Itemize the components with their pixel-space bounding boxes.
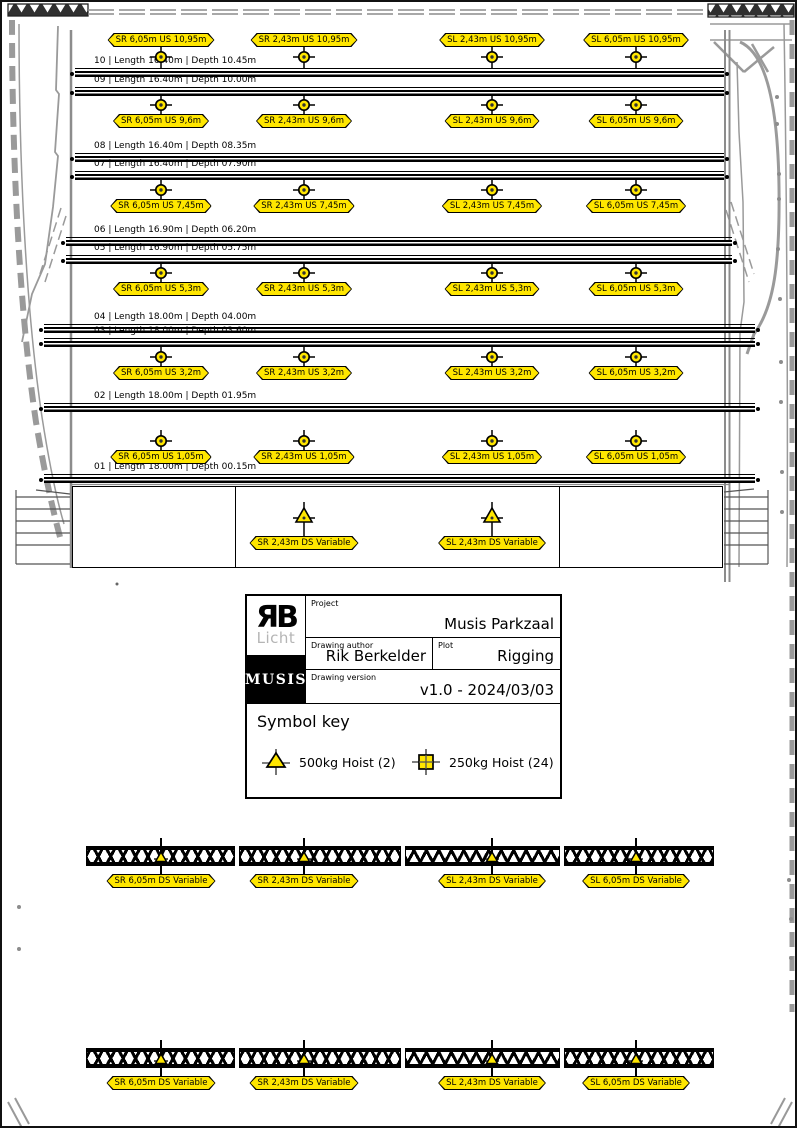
flybar-label: 08 | Length 16.40m | Depth 08.35m bbox=[94, 141, 256, 151]
hoist-250kg-icon bbox=[481, 430, 503, 452]
hoist-label: SL 2,43m US 3,2m bbox=[445, 366, 540, 380]
plot-value: Rigging bbox=[497, 647, 554, 665]
hoist-500kg bbox=[628, 849, 644, 868]
hoist-500kg bbox=[153, 849, 169, 868]
hoist-500kg-icon bbox=[479, 502, 505, 540]
hoist-label: SL 2,43m US 5,3m bbox=[445, 282, 540, 296]
hoist-label-text: SL 6,05m US 5,3m bbox=[590, 283, 683, 295]
key-item-250kg: 250kg Hoist (24) bbox=[411, 748, 554, 776]
truss-segment bbox=[240, 847, 400, 865]
hoist-label-text: SR 6,05m US 1,05m bbox=[111, 451, 210, 463]
author-value: Rik Berkelder bbox=[326, 647, 426, 665]
hoist-label: SL 2,43m US 1,05m bbox=[442, 450, 542, 464]
hoist-label: SR 2,43m US 5,3m bbox=[256, 282, 352, 296]
hoist-500kg-icon bbox=[291, 502, 317, 540]
hoist-label-text: SL 6,05m US 10,95m bbox=[584, 34, 688, 46]
hoist-label: SR 6,05m US 10,95m bbox=[108, 33, 215, 47]
truss-hoist-label-text: SR 2,43m DS Variable bbox=[251, 1077, 358, 1089]
top-truss-band-left bbox=[8, 4, 88, 16]
stage-apron-divider bbox=[559, 486, 560, 568]
truss-hoist-label: SL 6,05m DS Variable bbox=[582, 1076, 690, 1090]
hoist-label: SR 2,43m US 1,05m bbox=[253, 450, 354, 464]
key-label-250kg: 250kg Hoist (24) bbox=[449, 755, 554, 770]
hoist-label: SR 2,43m US 7,45m bbox=[253, 199, 354, 213]
ds-hoist-label: SL 2,43m DS Variable bbox=[438, 536, 546, 550]
hoist-250kg-icon bbox=[150, 262, 172, 284]
hoist-250kg bbox=[625, 46, 647, 72]
hoist-label: SR 6,05m US 7,45m bbox=[110, 199, 211, 213]
hoist-label-text: SL 6,05m US 1,05m bbox=[587, 451, 685, 463]
hoist-500kg-icon bbox=[296, 850, 312, 864]
hoist-label: SR 2,43m US 9,6m bbox=[256, 114, 352, 128]
hoist-label: SR 6,05m US 5,3m bbox=[113, 282, 209, 296]
hoist-label: SR 6,05m US 1,05m bbox=[110, 450, 211, 464]
flybar-line bbox=[44, 403, 755, 404]
hoist-500kg-icon bbox=[484, 1052, 500, 1066]
flybar-label: 05 | Length 16.90m | Depth 05.75m bbox=[94, 243, 256, 253]
truss-hoist-label-text: SL 6,05m DS Variable bbox=[583, 875, 689, 887]
truss-hoist-label-text: SL 2,43m DS Variable bbox=[439, 875, 545, 887]
hoist-label-text: SR 2,43m US 3,2m bbox=[257, 367, 351, 379]
flybar-label: 06 | Length 16.90m | Depth 06.20m bbox=[94, 225, 256, 235]
musis-logo-text: MUSIS bbox=[245, 672, 307, 688]
flybar-label: 02 | Length 18.00m | Depth 01.95m bbox=[94, 391, 256, 401]
logo-cell: ЯB Licht MUSIS bbox=[247, 596, 306, 704]
hoist-label: SL 6,05m US 10,95m bbox=[583, 33, 689, 47]
hoist-250kg bbox=[150, 46, 172, 72]
hoist-label-text: SR 2,43m US 9,6m bbox=[257, 115, 351, 127]
hoist-label: SR 2,43m US 10,95m bbox=[251, 33, 358, 47]
truss-segment bbox=[406, 1049, 559, 1067]
hoist-label: SR 6,05m US 9,6m bbox=[113, 114, 209, 128]
project-label: Project bbox=[311, 599, 338, 608]
hoist-250kg-icon bbox=[293, 179, 315, 201]
hoist-250kg-icon bbox=[625, 179, 647, 201]
licht-logo-text: Licht bbox=[257, 631, 296, 646]
musis-logo: MUSIS bbox=[247, 655, 305, 704]
truss-segment bbox=[240, 1049, 400, 1067]
key-label-500kg: 500kg Hoist (2) bbox=[299, 755, 396, 770]
hoist-label-text: SR 6,05m US 9,6m bbox=[114, 115, 208, 127]
hoist-250kg-icon bbox=[481, 46, 503, 68]
hoist-250kg-icon bbox=[625, 94, 647, 116]
truss-hoist-label: SR 2,43m DS Variable bbox=[250, 874, 359, 888]
hoist-label: SL 2,43m US 9,6m bbox=[445, 114, 540, 128]
symbol-key: Symbol key 500kg Hoist (2) 250kg Hoist bbox=[247, 704, 560, 797]
hoist-250kg-icon bbox=[625, 46, 647, 68]
hoist-label: SL 6,05m US 9,6m bbox=[589, 114, 684, 128]
truss-hoist-label-text: SR 6,05m DS Variable bbox=[108, 875, 215, 887]
hoist-label-text: SL 6,05m US 9,6m bbox=[590, 115, 683, 127]
truss-segment bbox=[406, 847, 559, 865]
title-block: ЯB Licht MUSIS Project Musis Parkzaal Dr… bbox=[245, 594, 562, 799]
hoist-250kg-icon bbox=[150, 430, 172, 452]
ds-hoist-label: SR 2,43m DS Variable bbox=[250, 536, 359, 550]
hoist-label-text: SR 2,43m US 1,05m bbox=[254, 451, 353, 463]
flybar-02: 02 | Length 18.00m | Depth 01.95m bbox=[44, 403, 755, 413]
hoist-250kg bbox=[293, 46, 315, 72]
hoist-label: SL 2,43m US 7,45m bbox=[442, 199, 542, 213]
hoist-250kg-icon bbox=[625, 262, 647, 284]
flybar-line bbox=[75, 87, 724, 88]
stage-steps-left bbox=[16, 490, 70, 564]
flybar-label: 10 | Length 16.40m | Depth 10.45m bbox=[94, 56, 256, 66]
flybar-line bbox=[44, 474, 755, 475]
hoist-label-text: SR 6,05m US 7,45m bbox=[111, 200, 210, 212]
hoist-500kg bbox=[484, 849, 500, 868]
flybar-line bbox=[75, 171, 724, 172]
hoist-500kg-icon bbox=[153, 850, 169, 864]
stage-apron-outline bbox=[72, 486, 723, 568]
plot-label: Plot bbox=[438, 641, 453, 650]
hoist-label: SL 2,43m US 10,95m bbox=[439, 33, 545, 47]
hoist-250kg-icon bbox=[293, 46, 315, 68]
hoist-label: SL 6,05m US 5,3m bbox=[589, 282, 684, 296]
flybar-label: 03 | Length 18.00m | Depth 03.60m bbox=[94, 326, 256, 336]
truss-hoist-label: SL 6,05m DS Variable bbox=[582, 874, 690, 888]
hoist-label-text: SL 2,43m US 7,45m bbox=[443, 200, 541, 212]
hoist-500kg-icon bbox=[296, 1052, 312, 1066]
hoist-250kg-icon bbox=[293, 94, 315, 116]
truss-hoist-label: SR 6,05m DS Variable bbox=[107, 874, 216, 888]
truss-hoist-label-text: SR 2,43m DS Variable bbox=[251, 875, 358, 887]
flybar-line bbox=[44, 324, 755, 325]
hoist-500kg bbox=[296, 1051, 312, 1070]
key-item-500kg: 500kg Hoist (2) bbox=[261, 748, 396, 776]
hoist-250kg bbox=[481, 46, 503, 72]
ds-hoist-label-text: SL 2,43m DS Variable bbox=[439, 537, 545, 549]
truss-hoist-label: SL 2,43m DS Variable bbox=[438, 1076, 546, 1090]
hoist-label-text: SR 6,05m US 10,95m bbox=[109, 34, 214, 46]
symbol-key-heading: Symbol key bbox=[257, 712, 350, 731]
hoist-500kg-icon bbox=[628, 1052, 644, 1066]
hoist-label: SR 6,05m US 3,2m bbox=[113, 366, 209, 380]
rb-logo-glyph: ЯB bbox=[256, 605, 296, 631]
hoist-250kg-icon bbox=[150, 46, 172, 68]
flybar-line bbox=[66, 237, 732, 238]
hoist-label-text: SR 2,43m US 10,95m bbox=[252, 34, 357, 46]
project-value: Musis Parkzaal bbox=[444, 615, 554, 633]
hoist-500kg bbox=[153, 1051, 169, 1070]
flybar-line bbox=[66, 255, 732, 256]
flybar-01: 01 | Length 18.00m | Depth 00.15m bbox=[44, 474, 755, 484]
hoist-label: SL 6,05m US 7,45m bbox=[586, 199, 686, 213]
version-label: Drawing version bbox=[311, 673, 376, 682]
hoist-label-text: SR 2,43m US 5,3m bbox=[257, 283, 351, 295]
hoist-500kg bbox=[296, 849, 312, 868]
ds-hoist-label-text: SR 2,43m DS Variable bbox=[251, 537, 358, 549]
rigging-plot-page: 10 | Length 16.40m | Depth 10.45m09 | Le… bbox=[0, 0, 797, 1128]
hoist-250kg-icon bbox=[411, 748, 441, 776]
left-wall bbox=[12, 20, 66, 537]
hoist-250kg-icon bbox=[293, 262, 315, 284]
hoist-label: SL 6,05m US 1,05m bbox=[586, 450, 686, 464]
hoist-250kg-icon bbox=[625, 346, 647, 368]
hoist-label: SR 2,43m US 3,2m bbox=[256, 366, 352, 380]
hoist-label-text: SL 2,43m US 9,6m bbox=[446, 115, 539, 127]
hoist-label-text: SR 6,05m US 3,2m bbox=[114, 367, 208, 379]
flybar-label: 09 | Length 16.40m | Depth 10.00m bbox=[94, 75, 256, 85]
hoist-250kg-icon bbox=[481, 94, 503, 116]
top-grid-line bbox=[88, 10, 708, 14]
right-wall bbox=[726, 20, 792, 1012]
hoist-250kg-icon bbox=[481, 179, 503, 201]
hoist-label-text: SL 2,43m US 10,95m bbox=[440, 34, 544, 46]
flybar-label: 04 | Length 18.00m | Depth 04.00m bbox=[94, 312, 256, 322]
hoist-label-text: SR 6,05m US 5,3m bbox=[114, 283, 208, 295]
stage-steps-right bbox=[724, 489, 768, 564]
truss-hoist-label-text: SL 2,43m DS Variable bbox=[439, 1077, 545, 1089]
hoist-500kg-icon bbox=[153, 1052, 169, 1066]
hoist-500kg bbox=[484, 1051, 500, 1070]
hoist-label-text: SL 2,43m US 1,05m bbox=[443, 451, 541, 463]
hoist-250kg-icon bbox=[150, 346, 172, 368]
hoist-500kg-icon bbox=[628, 850, 644, 864]
rb-licht-logo: ЯB Licht bbox=[247, 596, 305, 655]
hoist-label: SL 6,05m US 3,2m bbox=[589, 366, 684, 380]
hoist-label-text: SL 2,43m US 5,3m bbox=[446, 283, 539, 295]
hoist-250kg-icon bbox=[481, 262, 503, 284]
stage-apron-divider bbox=[235, 486, 236, 568]
version-cell: Drawing version v1.0 - 2024/03/03 bbox=[306, 670, 560, 704]
flybar-batten bbox=[44, 477, 755, 483]
truss-hoist-label-text: SR 6,05m DS Variable bbox=[108, 1077, 215, 1089]
truss-hoist-label: SR 6,05m DS Variable bbox=[107, 1076, 216, 1090]
truss-hoist-label: SR 2,43m DS Variable bbox=[250, 1076, 359, 1090]
hoist-250kg-icon bbox=[150, 179, 172, 201]
flybar-line bbox=[44, 338, 755, 339]
plot-cell: Plot Rigging bbox=[433, 638, 560, 670]
hoist-label-text: SL 6,05m US 3,2m bbox=[590, 367, 683, 379]
author-cell: Drawing author Rik Berkelder bbox=[306, 638, 433, 670]
hoist-500kg bbox=[628, 1051, 644, 1070]
hoist-250kg-icon bbox=[625, 430, 647, 452]
version-value: v1.0 - 2024/03/03 bbox=[420, 681, 554, 699]
hoist-250kg-icon bbox=[150, 94, 172, 116]
project-cell: Project Musis Parkzaal bbox=[306, 596, 560, 638]
truss-hoist-label: SL 2,43m DS Variable bbox=[438, 874, 546, 888]
flybar-batten bbox=[44, 406, 755, 412]
hoist-250kg-icon bbox=[481, 346, 503, 368]
truss-hoist-label-text: SL 6,05m DS Variable bbox=[583, 1077, 689, 1089]
hoist-label-text: SL 6,05m US 7,45m bbox=[587, 200, 685, 212]
flybar-label: 07 | Length 16.40m | Depth 07.90m bbox=[94, 159, 256, 169]
flybar-line bbox=[75, 153, 724, 154]
hoist-500kg-icon bbox=[261, 748, 291, 776]
hoist-250kg-icon bbox=[293, 430, 315, 452]
hoist-label-text: SL 2,43m US 3,2m bbox=[446, 367, 539, 379]
top-truss-band-right bbox=[708, 4, 794, 72]
hoist-250kg-icon bbox=[293, 346, 315, 368]
hoist-500kg-icon bbox=[484, 850, 500, 864]
hoist-label-text: SR 2,43m US 7,45m bbox=[254, 200, 353, 212]
